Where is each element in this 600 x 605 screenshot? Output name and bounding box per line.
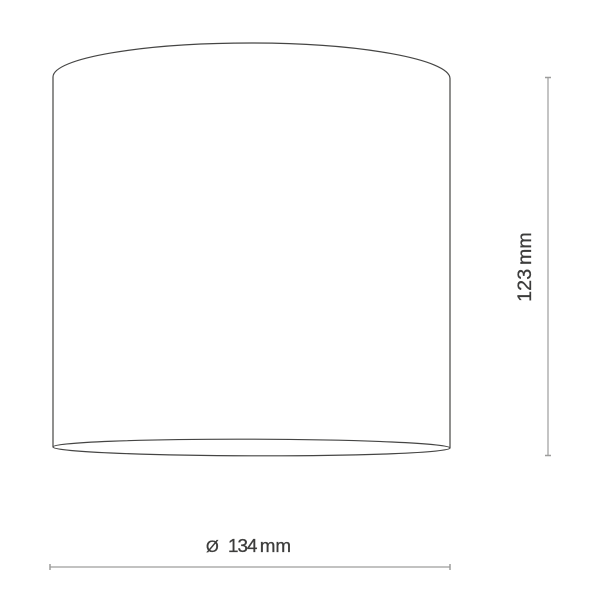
svg-text:123 mm: 123 mm bbox=[514, 232, 536, 302]
svg-text:Ø134mm: Ø134mm bbox=[206, 535, 291, 556]
